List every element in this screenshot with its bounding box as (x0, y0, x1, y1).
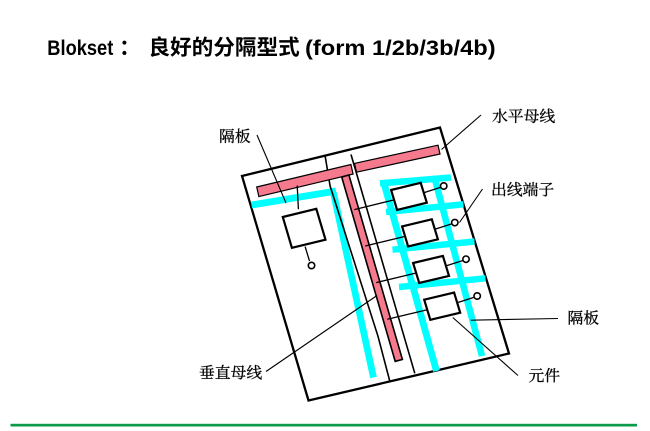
svg-text:Blokset: Blokset (47, 35, 113, 60)
svg-text:(form 1/2b/3b/4b): (form 1/2b/3b/4b) (305, 35, 496, 60)
